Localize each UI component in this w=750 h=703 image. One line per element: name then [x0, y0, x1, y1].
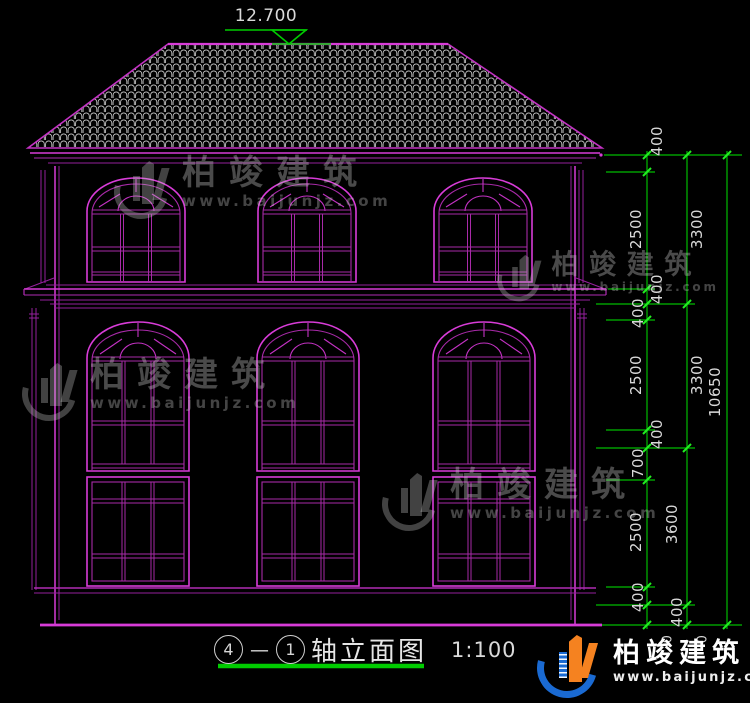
dim-label: 3300: [688, 355, 706, 395]
cad-drawing-canvas: 12.700 400 2500 3300 400 400 2500 3300 4…: [0, 0, 750, 703]
dim-label: 2500: [627, 209, 645, 249]
baijun-logo-icon: [538, 629, 604, 695]
lower-windows: [87, 477, 535, 586]
hip-roof: [28, 44, 603, 163]
plinth-and-ground-line: [34, 588, 602, 625]
drawing-scale: 1:100: [451, 638, 517, 662]
brand-name: 柏竣建筑: [613, 639, 750, 669]
dim-label: 400: [648, 419, 666, 449]
dim-label: 2500: [627, 512, 645, 552]
wall-outline: [29, 166, 587, 625]
dim-label: 400: [648, 126, 666, 156]
first-floor-arched-windows: [87, 322, 535, 471]
dim-label: 400: [629, 582, 647, 612]
dim-label: 400: [629, 298, 647, 328]
dim-label: 3300: [688, 209, 706, 249]
dim-label-total-height: 10650: [706, 367, 724, 417]
dim-label: 400: [668, 597, 686, 627]
axis-dash: —: [250, 639, 269, 661]
dim-label: 3600: [663, 504, 681, 544]
second-floor-windows: [87, 178, 532, 282]
axis-bubble-start: 4: [214, 635, 243, 664]
ridge-elevation-value: 12.700: [235, 6, 297, 26]
drawing-title-text: 轴立面图: [311, 631, 427, 668]
drawing-title: 4 — 1 轴立面图 1:100: [214, 631, 517, 668]
dim-label: 2500: [627, 355, 645, 395]
ridge-elevation-marker: [225, 30, 331, 44]
brand-footer: 柏竣建筑 www.baijunjz.com: [538, 629, 750, 695]
axis-bubble-end: 1: [276, 635, 305, 664]
dim-label: 700: [629, 448, 647, 478]
brand-url: www.baijunjz.com: [613, 670, 750, 685]
dim-label: 400: [648, 274, 666, 304]
